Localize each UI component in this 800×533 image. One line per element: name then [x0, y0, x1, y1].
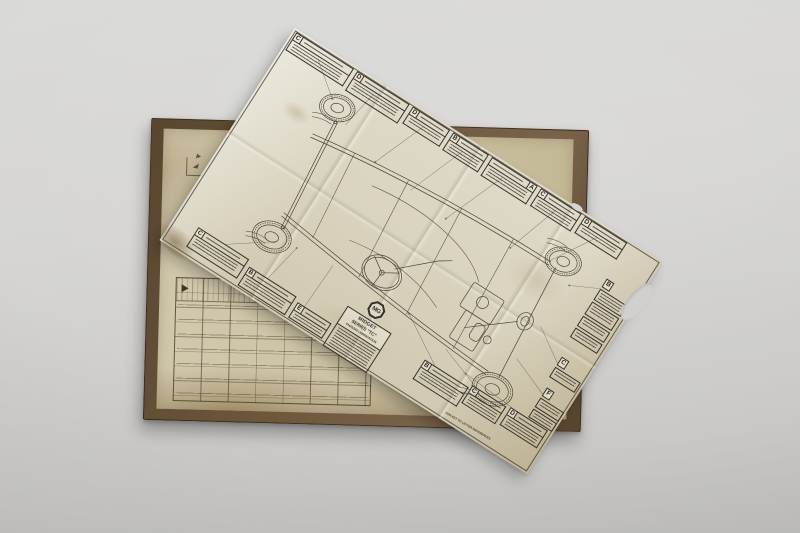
triangle-marker	[181, 284, 188, 292]
engine-gearbox	[442, 282, 523, 364]
photo-scene: C D D B A C D B	[0, 0, 800, 533]
rear-tire-top	[541, 243, 585, 281]
steering-wheel	[355, 221, 452, 315]
front-tire-top	[316, 90, 358, 125]
rear-axle	[485, 265, 565, 378]
